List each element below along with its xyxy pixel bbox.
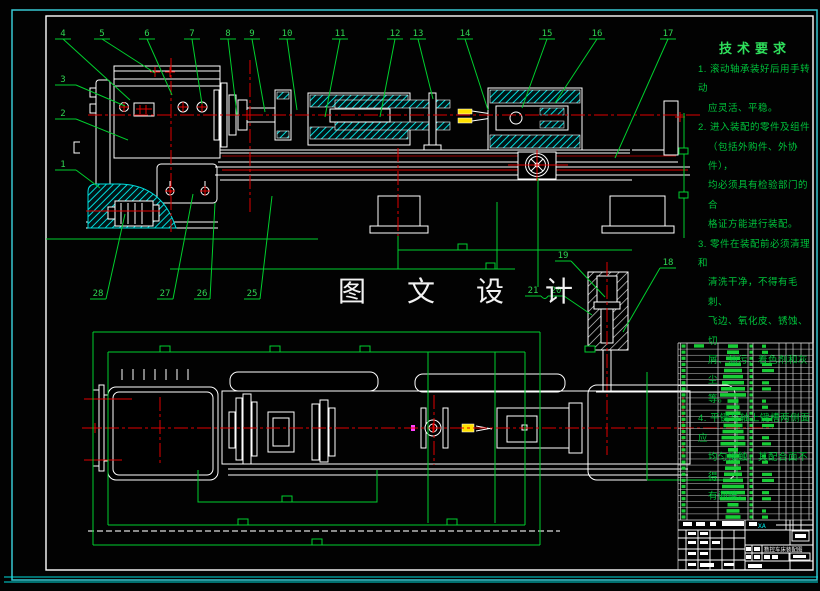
callout-number: 12 [390, 29, 401, 39]
callout-number: 8 [225, 29, 230, 39]
callout-number: 15 [542, 29, 553, 39]
callout-number: 5 [99, 29, 104, 39]
callout-number: 28 [93, 289, 104, 299]
tech-requirements-body: 1. 滚动轴承装好后用手转动 应灵活、平稳。 2. 进入装配的零件及组件 （包括… [698, 60, 814, 506]
tech-line: 3. 零件在装配前必须清理和 [698, 235, 814, 274]
tech-line: 格证方能进行装配。 [698, 215, 814, 234]
callout-number: 6 [144, 29, 149, 39]
tech-line: 应灵活、平稳。 [698, 99, 814, 118]
callout-number: 9 [249, 29, 254, 39]
title-block: XA 数控车床装配图 [678, 520, 813, 570]
tech-line: 均匀接触，其配合面不得 [698, 448, 814, 487]
callout-number: 13 [413, 29, 424, 39]
title-block-drawing-name: 数控车床装配图 [764, 546, 803, 554]
tech-line: 4. 平键与轴上键槽两侧面应 [698, 409, 814, 448]
callout-number: 18 [663, 258, 674, 268]
tech-line: 均必须具有检验部门的合 [698, 176, 814, 215]
callout-number: 10 [282, 29, 293, 39]
callout-number: 19 [558, 251, 569, 261]
tech-requirements-title: 技术要求 [696, 38, 814, 57]
callout-number: 27 [160, 289, 171, 299]
tech-line: 有间隙。 [698, 487, 814, 506]
watermark-text: 图 文 设 计 [338, 270, 558, 310]
tech-line: （包括外购件、外协件）， [698, 138, 814, 177]
callout-number: 26 [197, 289, 208, 299]
title-block-code: XA [758, 522, 766, 530]
tech-line: 屑、油污、着色剂和灰尘 [698, 351, 814, 390]
callout-number: 14 [460, 29, 471, 39]
tech-line: 清洗干净，不得有毛刺、 [698, 273, 814, 312]
tech-line: 1. 滚动轴承装好后用手转动 [698, 60, 814, 99]
callout-number: 17 [663, 29, 674, 39]
callout-number: 1 [60, 160, 65, 170]
callout-number: 25 [247, 289, 258, 299]
tech-line: 飞边、氧化皮、锈蚀、切 [698, 312, 814, 351]
callout-number: 4 [60, 29, 65, 39]
tech-line: 等。 [698, 390, 814, 409]
callout-number: 7 [189, 29, 194, 39]
callout-number: 16 [592, 29, 603, 39]
cad-drawing-canvas: 4 5 6 7 8 9 10 11 12 13 14 15 16 17 3 2 … [0, 0, 820, 591]
callout-number: 11 [335, 29, 346, 39]
tech-line: 2. 进入装配的零件及组件 [698, 118, 814, 137]
callout-number: 2 [60, 109, 65, 119]
callout-number: 3 [60, 75, 65, 85]
